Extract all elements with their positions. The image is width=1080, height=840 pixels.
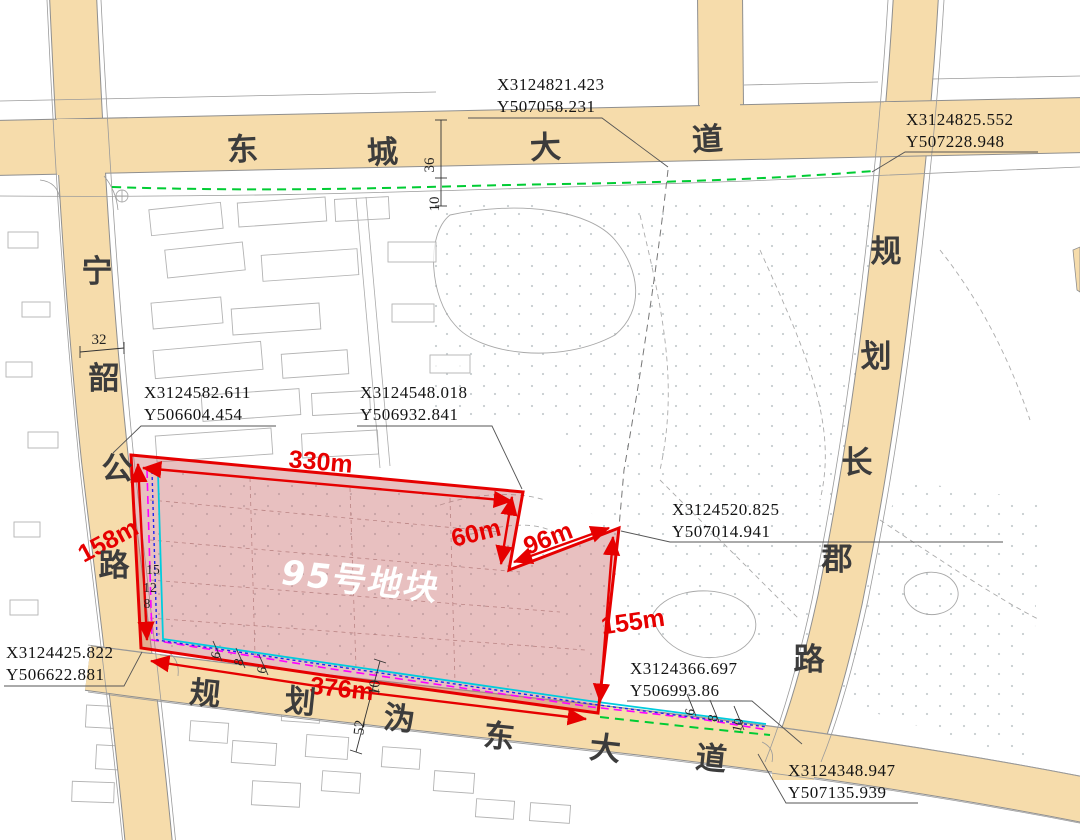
top-road-width: 36 [422, 157, 438, 173]
left-offset-2: 12 [143, 580, 157, 595]
road-top-char-3: 大 [529, 129, 562, 167]
coord-top-right-y: Y507228.948 [906, 132, 1005, 151]
bottom-road-width: 52 [351, 719, 368, 736]
coord-mid-x: X3124548.018 [360, 383, 468, 402]
road-bottom-char-1: 规 [188, 675, 223, 714]
coord-top-center-y: Y507058.231 [497, 97, 596, 116]
coord-east-y: Y507014.941 [672, 522, 771, 541]
left-road-width: 32 [92, 332, 107, 348]
road-top-char-1: 东 [226, 131, 259, 169]
road-left-char-2: 韶 [89, 361, 120, 397]
road-right-char-1: 规 [871, 234, 902, 270]
planning-map-canvas[interactable]: X3124821.423 Y507058.231 X3124825.552 Y5… [0, 0, 1080, 840]
road-bottom-char-2: 划 [283, 683, 318, 722]
road-right-char-2: 划 [861, 339, 892, 375]
coord-top-right-x: X3124825.552 [906, 110, 1014, 129]
left-offset-1: 15 [146, 562, 160, 577]
coord-top-center-x: X3124821.423 [497, 75, 605, 94]
coord-south-x: X3124366.697 [630, 659, 738, 678]
road-bottom-char-5: 大 [588, 730, 623, 769]
road-top-char-2: 城 [366, 134, 399, 172]
coord-south-y: Y506993.86 [630, 681, 720, 700]
coord-west-x: X3124582.611 [144, 383, 251, 402]
dim-top: 330m [288, 445, 354, 478]
coord-southeast-x: X3124348.947 [788, 761, 896, 780]
left-offset-3: 8 [144, 596, 151, 611]
road-top-char-4: 道 [691, 121, 724, 159]
road-bottom-char-4: 东 [482, 718, 517, 757]
road-right-char-3: 长 [842, 445, 873, 481]
top-green-offset: 10 [427, 197, 443, 212]
lane-path [356, 197, 390, 468]
road-right-char-4: 郡 [821, 542, 853, 578]
bottom-right-offset-3: 10 [729, 717, 747, 734]
coord-east-x: X3124520.825 [672, 500, 780, 519]
road-bottom-char-6: 道 [694, 740, 729, 779]
planning-map-svg: X3124821.423 Y507058.231 X3124825.552 Y5… [0, 0, 1080, 840]
coord-mid-y: Y506932.841 [360, 405, 459, 424]
coord-southeast-y: Y507135.939 [788, 783, 887, 802]
road-bottom-char-3: 沩 [382, 700, 417, 739]
road-left-char-4: 路 [99, 548, 131, 584]
road-left-char-3: 公 [102, 451, 133, 487]
coord-west-y: Y506604.454 [144, 405, 243, 424]
coord-southwest-y: Y506622.881 [6, 665, 105, 684]
bottom-green-offset: 10 [366, 679, 383, 696]
coord-southwest-x: X3124425.822 [6, 643, 114, 662]
road-left-char-1: 宁 [82, 254, 113, 290]
road-right-char-5: 路 [794, 642, 826, 678]
